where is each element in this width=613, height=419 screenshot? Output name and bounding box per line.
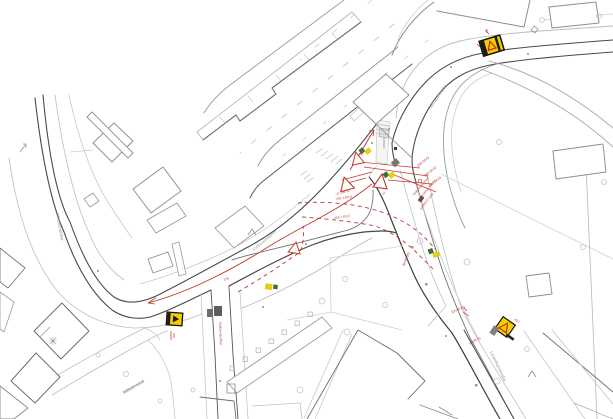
svg-text:Holtzendorffstr: Holtzendorffstr — [218, 322, 223, 346]
